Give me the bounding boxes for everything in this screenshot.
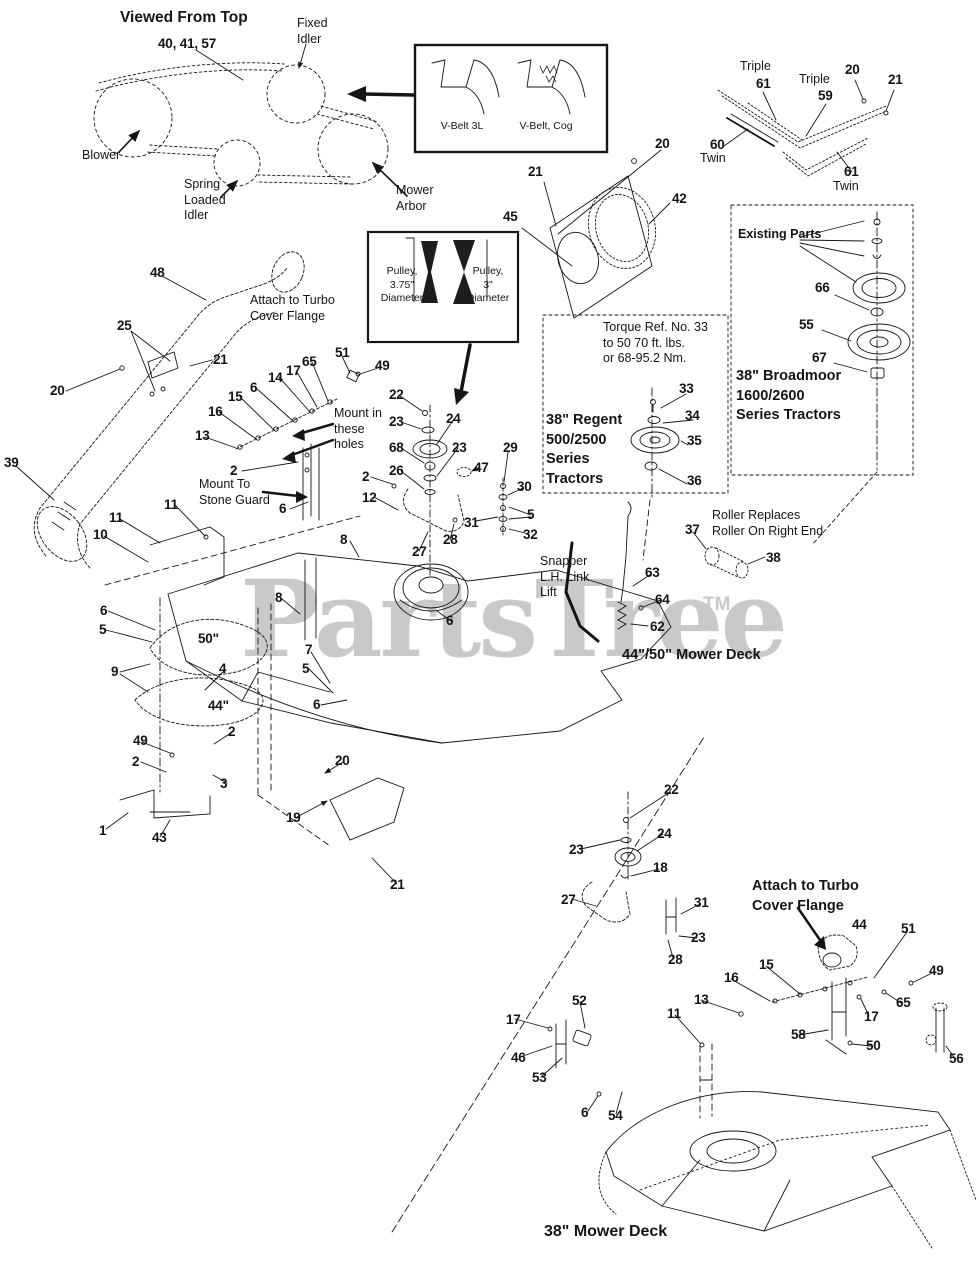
part-number-label: 49 [375,358,390,375]
annotation-label: Mount To Stone Guard [199,477,270,508]
part-number-label: 6 [100,603,107,620]
part-number-label: 37 [685,522,700,539]
part-number-label: 52 [572,993,587,1010]
part-number-label: 18 [653,860,668,877]
annotation-label: Viewed From Top [120,8,248,27]
part-number-label: 5 [99,622,106,639]
part-number-label: 50 [866,1038,881,1055]
part-number-label: 47 [474,460,489,477]
annotation-label: 38" Mower Deck [544,1222,667,1242]
part-number-label: 30 [517,479,532,496]
part-number-label: 13 [195,428,210,445]
annotation-label: 38" Regent 500/2500 Series Tractors [546,411,622,489]
part-number-label: 7 [305,642,312,659]
part-number-label: 68 [389,440,404,457]
part-number-label: 23 [452,440,467,457]
part-number-label: 9 [111,664,118,681]
part-number-label: 45 [503,209,518,226]
part-number-label: 17 [506,1012,521,1029]
part-number-label: 8 [275,590,282,607]
part-number-label: 43 [152,830,167,847]
annotation-label: Mower Arbor [396,183,434,214]
part-number-label: 16 [724,970,739,987]
part-number-label: 20 [655,136,670,153]
part-number-label: 58 [791,1027,806,1044]
annotation-label: 38" Broadmoor 1600/2600 Series Tractors [736,367,841,426]
part-number-label: 2 [228,724,235,741]
part-number-label: 49 [929,963,944,980]
part-number-label: 2 [362,469,369,486]
part-number-label: 35 [687,433,702,450]
part-number-label: 55 [799,317,814,334]
parts-diagram-page: PartsTree TM [0,0,979,1280]
part-number-label: 10 [93,527,108,544]
label-layer: Viewed From Top40, 41, 57Fixed IdlerBlow… [0,0,979,1280]
part-number-label: 63 [645,565,660,582]
annotation-label: V-Belt 3L [432,120,492,134]
part-number-label: 6 [313,697,320,714]
part-number-label: 19 [286,810,301,827]
part-number-label: 20 [335,753,350,770]
annotation-label: Fixed Idler [297,16,328,47]
part-number-label: 11 [109,510,123,527]
part-number-label: 24 [446,411,461,428]
part-number-label: 49 [133,733,148,750]
part-number-label: 28 [668,952,683,969]
part-number-label: 65 [896,995,911,1012]
part-number-label: 6 [446,613,453,630]
annotation-label: Roller Replaces Roller On Right End [712,508,823,539]
part-number-label: 6 [250,380,257,397]
part-number-label: 39 [4,455,19,472]
part-number-label: 38 [766,550,781,567]
part-number-label: 4 [219,661,226,678]
part-number-label: 56 [949,1051,964,1068]
annotation-label: Triple [740,59,771,75]
annotation-label: Attach to Turbo Cover Flange [250,293,335,324]
annotation-label: Mount in these holes [334,406,382,453]
part-number-label: 13 [694,992,709,1009]
part-number-label: 21 [213,352,228,369]
annotation-label: Snapper L.H. Link Lift [540,554,589,601]
part-number-label: 64 [655,592,670,609]
part-number-label: 54 [608,1108,623,1125]
annotation-label: Blower [82,148,120,164]
part-number-label: 48 [150,265,165,282]
annotation-label: Twin [833,179,859,195]
part-number-label: 5 [527,507,534,524]
part-number-label: 5 [302,661,309,678]
annotation-label: V-Belt, Cog [516,120,576,134]
annotation-label: Torque Ref. No. 33 to 50 70 ft. lbs. or … [603,320,708,367]
part-number-label: 31 [464,515,479,532]
part-number-label: 6 [279,501,286,518]
part-number-label: 53 [532,1070,547,1087]
part-number-label: 28 [443,532,458,549]
annotation-label: 44"/50" Mower Deck [622,646,761,666]
part-number-label: 6 [581,1105,588,1122]
part-number-label: 14 [268,370,283,387]
part-number-label: 21 [390,877,405,894]
part-number-label: 21 [528,164,543,181]
annotation-label: Pulley, 3.75" Diameter [372,265,432,306]
part-number-label: 25 [117,318,132,335]
part-number-label: 1 [99,823,106,840]
part-number-label: 50" [198,631,219,648]
part-number-label: 36 [687,473,702,490]
part-number-label: 21 [888,72,903,89]
part-number-label: 62 [650,619,665,636]
part-number-label: 11 [164,497,178,514]
part-number-label: 23 [691,930,706,947]
part-number-label: 59 [818,88,833,105]
part-number-label: 20 [845,62,860,79]
annotation-label: Spring Loaded Idler [184,177,226,224]
part-number-label: 23 [389,414,404,431]
annotation-label: Pulley, 3" Diameter [458,265,518,306]
part-number-label: 26 [389,463,404,480]
part-number-label: 40, 41, 57 [158,36,216,53]
annotation-label: Existing Parts [738,227,821,243]
part-number-label: 44 [852,917,867,934]
part-number-label: 12 [362,490,377,507]
part-number-label: 27 [561,892,576,909]
part-number-label: 20 [50,383,65,400]
annotation-label: Triple [799,72,830,88]
part-number-label: 27 [412,544,427,561]
part-number-label: 8 [340,532,347,549]
part-number-label: 24 [657,826,672,843]
part-number-label: 46 [511,1050,526,1067]
part-number-label: 44" [208,698,229,715]
annotation-label: Twin [700,151,726,167]
part-number-label: 67 [812,350,827,367]
part-number-label: 65 [302,354,317,371]
part-number-label: 3 [220,776,227,793]
part-number-label: 29 [503,440,518,457]
part-number-label: 42 [672,191,687,208]
part-number-label: 23 [569,842,584,859]
part-number-label: 17 [864,1009,879,1026]
part-number-label: 15 [228,389,243,406]
part-number-label: 51 [901,921,916,938]
part-number-label: 22 [664,782,679,799]
part-number-label: 31 [694,895,709,912]
part-number-label: 2 [132,754,139,771]
part-number-label: 66 [815,280,830,297]
part-number-label: 15 [759,957,774,974]
part-number-label: 34 [685,408,700,425]
part-number-label: 32 [523,527,538,544]
part-number-label: 51 [335,345,350,362]
part-number-label: 17 [286,363,301,380]
annotation-label: Attach to Turbo Cover Flange [752,877,859,916]
part-number-label: 22 [389,387,404,404]
part-number-label: 11 [667,1006,681,1023]
part-number-label: 16 [208,404,223,421]
part-number-label: 61 [756,76,771,93]
part-number-label: 33 [679,381,694,398]
